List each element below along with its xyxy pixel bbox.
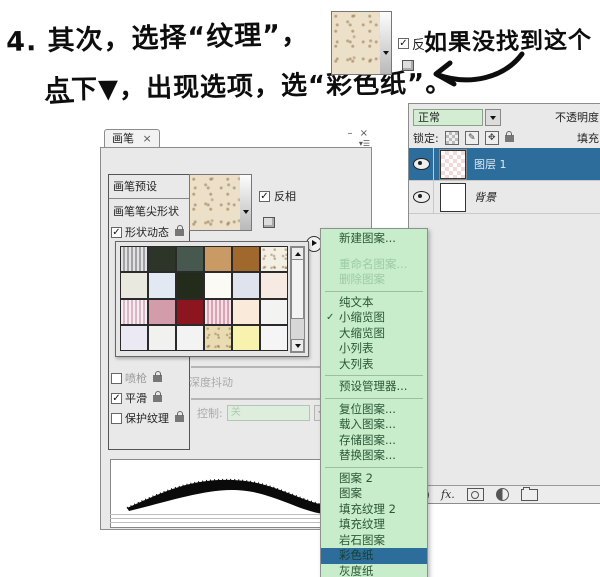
depth-jitter-label: 深度抖动 [189, 374, 233, 390]
pattern-swatch[interactable] [148, 299, 176, 325]
invert-label-short: 反 [412, 34, 425, 53]
brush-tip-shape-item[interactable]: 画笔笔尖形状 [109, 200, 189, 222]
visibility-cell[interactable] [409, 148, 434, 180]
menu-item-label: 新建图案... [339, 231, 396, 245]
adjustment-layer-icon[interactable] [496, 488, 509, 501]
menu-item-label: 载入图案... [339, 417, 396, 431]
pattern-swatch[interactable] [176, 272, 204, 298]
eye-icon[interactable] [413, 158, 430, 170]
menu-separator [325, 375, 423, 376]
layer-row[interactable]: 图层 1 [409, 148, 600, 181]
screenshot-root: 4. 其次，选择“纹理”， 如果没找到这个 点下▼，出现选项，选“彩色纸”。 ✓… [0, 0, 600, 577]
pattern-swatch[interactable] [232, 246, 260, 272]
lock-label: 锁定: [413, 130, 439, 146]
fill-label: 填充: [577, 130, 600, 146]
menu-item-label: 小列表 [339, 341, 374, 355]
control-select[interactable]: 关 [227, 405, 310, 421]
menu-separator [321, 247, 427, 257]
pattern-swatch[interactable] [260, 299, 288, 325]
brush-presets-item[interactable]: 画笔预设 [109, 175, 189, 197]
menu-item-label: 图案 [339, 486, 362, 500]
new-group-icon[interactable] [521, 489, 538, 501]
control-label: 控制: [197, 405, 223, 421]
visibility-cell[interactable] [409, 181, 434, 213]
menu-item[interactable]: 存储图案... [321, 433, 427, 449]
annotation-texture-snippet [331, 11, 395, 77]
tab-brushes[interactable]: 画笔 × [104, 129, 160, 148]
menu-item-label: 彩色纸 [339, 548, 374, 562]
pattern-swatch[interactable] [120, 272, 148, 298]
texture-thumbnail [189, 174, 241, 231]
menu-item[interactable]: 小列表 [321, 341, 427, 357]
pattern-swatch[interactable] [204, 246, 232, 272]
menu-separator [325, 398, 423, 399]
pattern-swatch[interactable] [204, 299, 232, 325]
menu-separator [325, 291, 423, 292]
pattern-swatch[interactable] [148, 325, 176, 351]
blend-mode-row: 正常 不透明度: [413, 109, 501, 126]
chevron-down-icon [490, 116, 496, 120]
opacity-label: 不透明度: [555, 109, 600, 125]
pattern-picker-popup [115, 241, 309, 357]
layers-panel: 正常 不透明度: 锁定: ✎ ✥ 填充: 图层 1背景 fx. [408, 103, 600, 504]
menu-item-label: 重命名图案... [339, 257, 407, 271]
tab-close-icon[interactable]: × [143, 132, 152, 145]
protect-texture-checkbox[interactable] [111, 413, 122, 424]
menu-item-label: 小缩览图 [339, 310, 385, 324]
lock-icon [175, 415, 184, 422]
menu-item-label: 岩石图案 [339, 533, 385, 547]
pattern-swatch[interactable] [176, 246, 204, 272]
menu-item[interactable]: 彩色纸 [321, 548, 427, 564]
menu-item[interactable]: 预设管理器... [321, 379, 427, 395]
scroll-down-button[interactable] [291, 339, 304, 352]
lock-move-icon[interactable]: ✥ [485, 131, 499, 145]
lock-icon [153, 375, 162, 382]
control-row: 控制: 关 [197, 405, 329, 421]
menu-item[interactable]: 图案 2 [321, 471, 427, 487]
menu-item-label: 填充纹理 2 [339, 502, 396, 516]
pattern-swatch[interactable] [232, 299, 260, 325]
chevron-down-icon[interactable] [383, 51, 389, 55]
pattern-swatch-grid [120, 246, 288, 351]
layer-style-button[interactable]: fx. [441, 488, 455, 501]
pattern-swatch[interactable] [260, 272, 288, 298]
layer-name: 图层 1 [474, 156, 507, 172]
menu-item-label: 大缩览图 [339, 326, 385, 340]
new-pattern-icon[interactable] [402, 60, 414, 71]
new-pattern-icon[interactable] [263, 217, 275, 228]
menu-item-label: 复位图案... [339, 402, 396, 416]
texture-thumbnail [331, 11, 381, 75]
menu-separator [325, 467, 423, 468]
smoothing-checkbox[interactable]: ✓ [111, 393, 122, 404]
smoothing-label: 平滑 [125, 390, 147, 406]
menu-item[interactable]: 填充纹理 [321, 517, 427, 533]
layer-name: 背景 [474, 189, 496, 205]
pattern-swatch[interactable] [120, 325, 148, 351]
layers-bottom-bar: fx. [409, 485, 600, 503]
menu-item[interactable]: 新建图案... [321, 231, 427, 247]
menu-item[interactable]: 大缩览图 [321, 326, 427, 342]
pattern-swatch[interactable] [176, 325, 204, 351]
blend-mode-select[interactable]: 正常 [413, 109, 483, 126]
shape-dynamics-item[interactable]: ✓ 形状动态 [109, 222, 189, 242]
lock-icon [175, 229, 184, 236]
menu-item[interactable]: 图案 [321, 486, 427, 502]
menu-item-label: 图案 2 [339, 471, 373, 485]
menu-item[interactable]: ✓小缩览图 [321, 310, 427, 326]
pattern-swatch[interactable] [260, 325, 288, 351]
texture-scrollbar[interactable] [240, 174, 252, 231]
window-buttons[interactable]: – × [347, 128, 370, 139]
pattern-swatch[interactable] [148, 246, 176, 272]
pattern-swatch[interactable] [204, 272, 232, 298]
invert-checkbox-row: ✓ 反相 [259, 188, 296, 204]
airbrush-checkbox[interactable] [111, 373, 122, 384]
pattern-menu: 新建图案...重命名图案...删除图案纯文本✓小缩览图大缩览图小列表大列表预设管… [320, 228, 428, 577]
pattern-swatch[interactable] [232, 325, 260, 351]
pattern-swatch[interactable] [120, 299, 148, 325]
menu-item[interactable]: 填充纹理 2 [321, 502, 427, 518]
check-icon: ✓ [326, 310, 334, 326]
hand-drawn-arrow [428, 48, 528, 92]
pattern-swatch[interactable] [204, 325, 232, 351]
pattern-swatch[interactable] [148, 272, 176, 298]
menu-item-label: 删除图案 [339, 272, 385, 286]
menu-item[interactable]: 复位图案... [321, 402, 427, 418]
menu-item[interactable]: 大列表 [321, 357, 427, 373]
menu-item[interactable]: 纯文本 [321, 295, 427, 311]
menu-item-label: 存储图案... [339, 433, 396, 447]
texture-preview-widget [189, 174, 253, 231]
handwriting-line1: 4. 其次，选择“纹理”， [6, 12, 310, 59]
swatch-scrollbar[interactable] [290, 246, 305, 353]
menu-item-label: 预设管理器... [339, 379, 407, 393]
lock-icon [153, 395, 162, 402]
menu-item[interactable]: 灰度纸 [321, 564, 427, 577]
lock-paint-icon[interactable]: ✎ [465, 131, 479, 145]
airbrush-label: 喷枪 [125, 370, 147, 386]
protect-texture-label: 保护纹理 [125, 410, 169, 426]
menu-item-label: 纯文本 [339, 295, 374, 309]
lock-all-icon[interactable] [505, 135, 514, 142]
lock-transparency-icon[interactable] [445, 131, 459, 145]
lock-row: 锁定: ✎ ✥ 填充: [413, 130, 514, 146]
menu-item[interactable]: 载入图案... [321, 417, 427, 433]
menu-item[interactable]: 删除图案 [321, 272, 427, 288]
pattern-swatch[interactable] [260, 246, 288, 272]
pattern-swatch[interactable] [232, 272, 260, 298]
menu-item-label: 填充纹理 [339, 517, 385, 531]
layer-thumbnail[interactable] [440, 183, 466, 212]
menu-item-label: 大列表 [339, 357, 374, 371]
scroll-thumb[interactable] [291, 259, 304, 319]
texture-scrollbar[interactable] [380, 11, 392, 75]
menu-item-label: 替换图案... [339, 448, 396, 462]
menu-item[interactable]: 重命名图案... [321, 257, 427, 273]
shape-dynamics-label: 形状动态 [125, 224, 169, 240]
invert-checkbox[interactable]: ✓ [398, 38, 409, 49]
pattern-swatch[interactable] [120, 246, 148, 272]
menu-item-label: 灰度纸 [339, 564, 374, 577]
menu-item[interactable]: 替换图案... [321, 448, 427, 464]
divider [109, 198, 189, 199]
tab-brushes-label: 画笔 [112, 132, 134, 145]
smoothing-item[interactable]: ✓ 平滑 [109, 388, 189, 408]
pattern-swatch[interactable] [176, 299, 204, 325]
airbrush-item[interactable]: 喷枪 [109, 368, 189, 388]
layer-row[interactable]: 背景 [409, 181, 600, 214]
eye-icon[interactable] [413, 191, 430, 203]
menu-item[interactable]: 岩石图案 [321, 533, 427, 549]
add-mask-icon[interactable] [467, 488, 484, 501]
chevron-down-icon[interactable] [243, 210, 249, 214]
layer-thumbnail[interactable] [440, 150, 466, 179]
layer-list: 图层 1背景 [409, 148, 600, 214]
protect-texture-item[interactable]: 保护纹理 [109, 408, 189, 428]
invert-checkbox[interactable]: ✓ [259, 191, 270, 202]
invert-label: 反相 [274, 188, 296, 204]
blend-mode-dropdown-button[interactable] [485, 109, 501, 126]
shape-dynamics-checkbox[interactable]: ✓ [111, 227, 122, 238]
annotation-invert-checkbox-row: ✓ 反 [398, 34, 425, 53]
